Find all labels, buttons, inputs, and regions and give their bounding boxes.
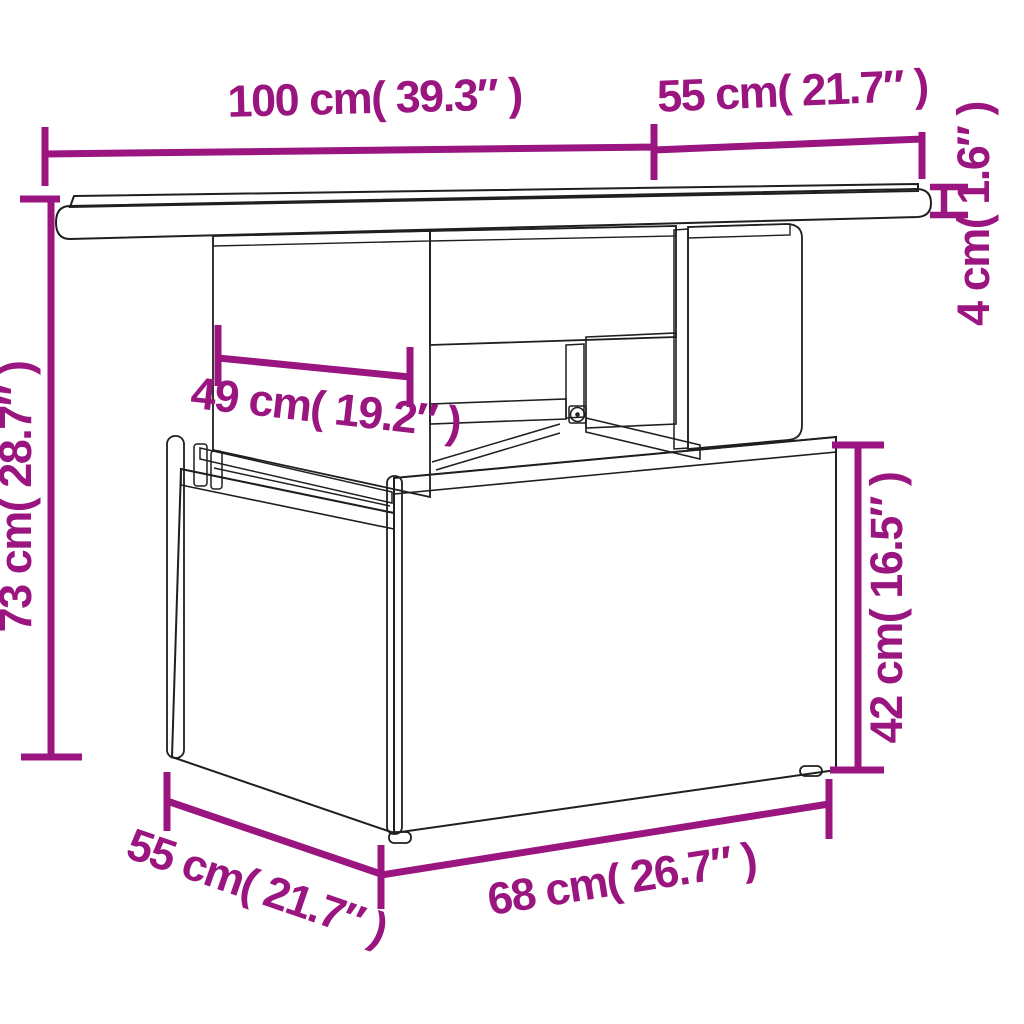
storage-base — [167, 436, 836, 843]
pedestal-right-panel-top-roll — [688, 224, 790, 238]
tabletop-front-face — [56, 189, 931, 239]
dim-total-height: 73 cm( 28.7″ ) — [0, 199, 82, 757]
dim-pedestal-width: 49 cm( 19.2″ ) — [188, 325, 463, 448]
support-rail-edge — [214, 468, 390, 506]
pedestal — [213, 224, 802, 497]
dim-base-width-label: 68 cm( 26.7″ ) — [484, 832, 759, 925]
base-right-rim-roll — [586, 418, 700, 459]
dim-top-width-label: 100 cm( 39.3″ ) — [227, 68, 522, 127]
dim-base-height: 42 cm( 16.5″ ) — [830, 445, 912, 770]
pedestal-right-panel — [688, 224, 802, 449]
dim-tabletop-thickness: 4 cm( 1.6″ ) — [930, 102, 999, 326]
pedestal-apron — [430, 226, 676, 345]
dim-base-height-label: 42 cm( 16.5″ ) — [861, 473, 912, 744]
dim-tabletop-thickness-label: 4 cm( 1.6″ ) — [948, 102, 999, 326]
dim-pedestal-width-label: 49 cm( 19.2″ ) — [188, 367, 463, 448]
dim-base-depth: 55 cm( 21.7″ ) — [121, 772, 394, 955]
dimension-annotations: 100 cm( 39.3″ ) 55 cm( 21.7″ ) 4 cm( 1.6… — [0, 59, 999, 954]
base-left-rim — [181, 469, 394, 529]
product-dimension-image: 100 cm( 39.3″ ) 55 cm( 21.7″ ) 4 cm( 1.6… — [0, 0, 1024, 1024]
table-drawing — [56, 184, 931, 843]
base-front-rim — [394, 437, 836, 494]
base-left-face — [172, 469, 394, 833]
dim-top-depth-label: 55 cm( 21.7″ ) — [656, 59, 929, 122]
dimension-diagram-svg: 100 cm( 39.3″ ) 55 cm( 21.7″ ) 4 cm( 1.6… — [0, 0, 1024, 1024]
screw-center — [575, 412, 580, 417]
dim-base-depth-label: 55 cm( 21.7″ ) — [121, 818, 394, 954]
dim-top-width: 100 cm( 39.3″ ) — [45, 68, 654, 186]
dim-total-height-label: 73 cm( 28.7″ ) — [0, 362, 41, 633]
dim-top-depth: 55 cm( 21.7″ ) — [654, 59, 929, 179]
base-front-face — [394, 437, 836, 833]
pedestal-back-panel — [586, 333, 676, 428]
dim-base-width: 68 cm( 26.7″ ) — [381, 779, 829, 925]
